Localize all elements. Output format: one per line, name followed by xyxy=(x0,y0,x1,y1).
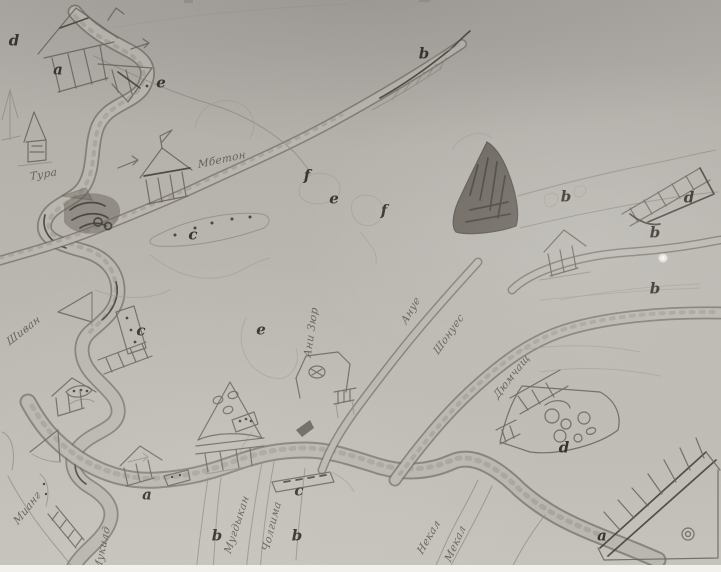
map-letter: b xyxy=(561,190,572,205)
map-letter: d xyxy=(684,191,695,206)
map-letter: d xyxy=(9,34,20,49)
scan-edge xyxy=(0,565,721,572)
map-letter: b xyxy=(212,529,223,544)
map-letter: e xyxy=(329,192,339,207)
map-letter: d xyxy=(559,441,570,456)
map-letter: f xyxy=(304,169,310,184)
map-letter: c xyxy=(188,228,197,243)
map-letter: e xyxy=(156,76,166,91)
map-canvas: d a e b f e f b d b b c c e a c b b d a … xyxy=(0,0,721,572)
white-spot xyxy=(659,254,668,263)
paper-texture xyxy=(0,0,721,572)
map-letter: a xyxy=(142,488,152,503)
map-letter: a xyxy=(597,529,607,544)
map-letter: f xyxy=(381,204,387,219)
map-letter: b xyxy=(650,226,661,241)
map-letter: c xyxy=(136,324,145,339)
map-letter: b xyxy=(650,282,661,297)
map-letter: b xyxy=(292,529,303,544)
map-drawing xyxy=(0,0,721,572)
map-letter: b xyxy=(419,47,430,62)
map-letter: e xyxy=(256,323,266,338)
map-letter: a xyxy=(53,63,63,78)
map-letter: c xyxy=(294,484,303,499)
